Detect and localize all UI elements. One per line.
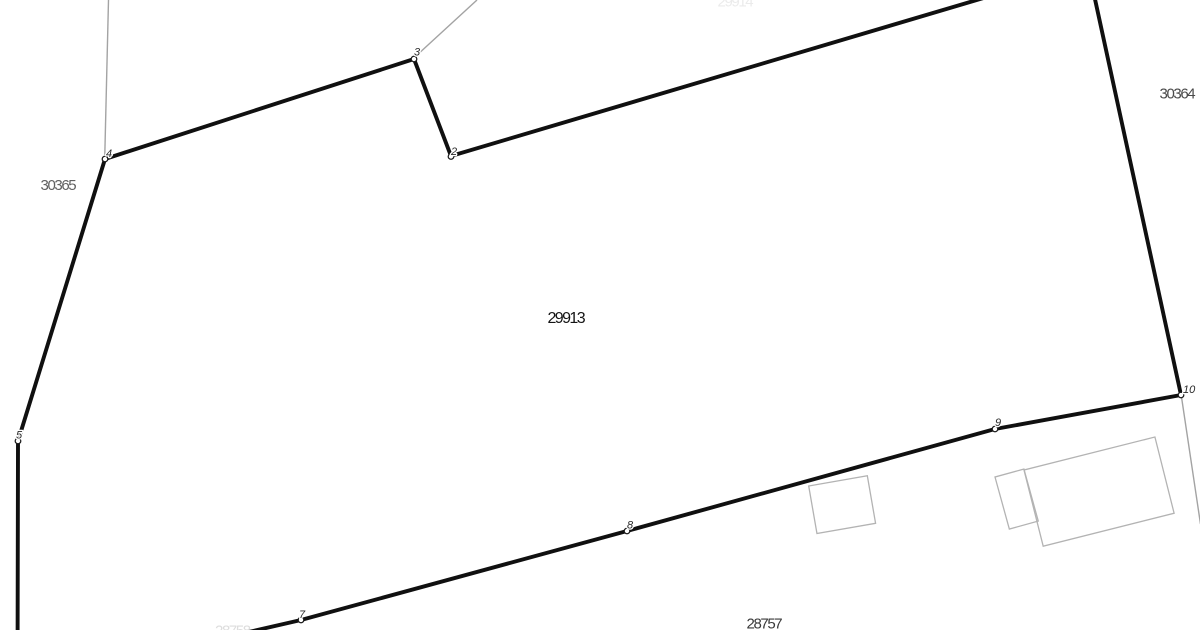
svg-text:5: 5 (16, 430, 23, 442)
svg-text:29913: 29913 (548, 310, 586, 327)
svg-text:8: 8 (627, 520, 634, 532)
svg-text:28758: 28758 (215, 623, 251, 630)
svg-text:7: 7 (299, 609, 306, 621)
svg-text:2: 2 (450, 146, 457, 158)
svg-text:30365: 30365 (41, 177, 77, 194)
svg-text:3: 3 (414, 47, 421, 59)
svg-text:28757: 28757 (747, 616, 783, 630)
svg-text:4: 4 (106, 148, 112, 160)
svg-text:10: 10 (1183, 384, 1196, 396)
svg-text:29914: 29914 (718, 0, 754, 11)
svg-text:9: 9 (995, 417, 1001, 429)
svg-text:30364: 30364 (1160, 86, 1196, 103)
